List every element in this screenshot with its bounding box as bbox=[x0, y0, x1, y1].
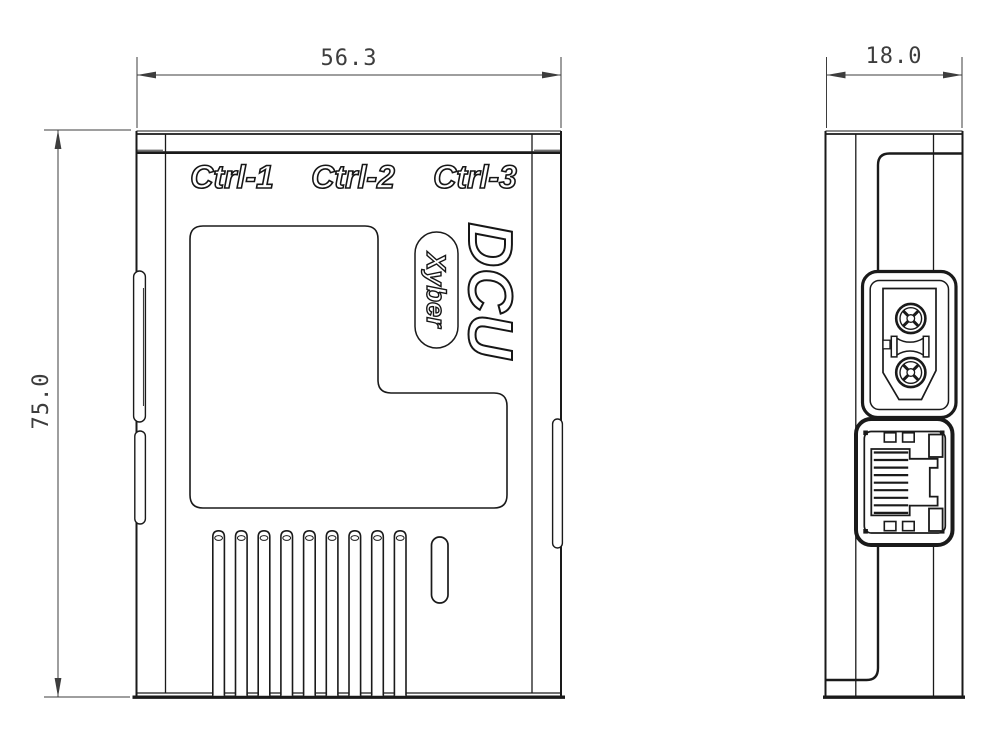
brand-name-label: Xyber bbox=[419, 235, 453, 345]
xt30-power-connector-icon bbox=[863, 272, 957, 418]
depth-dimension-value: 18.0 bbox=[834, 44, 954, 70]
cad-drawing-sheet: 56.3 18.0 75.0 Ctrl-1 Ctrl-2 Ctrl-3 DCU … bbox=[0, 0, 1000, 737]
port-label-ctrl3: Ctrl-3 bbox=[410, 160, 540, 194]
cooling-fins-icon bbox=[213, 531, 406, 696]
height-dimension bbox=[44, 130, 131, 697]
port-label-ctrl1: Ctrl-1 bbox=[167, 160, 297, 194]
status-led-slot bbox=[432, 537, 449, 603]
model-name-label: DCU bbox=[454, 191, 524, 391]
width-dimension-value: 56.3 bbox=[289, 46, 409, 72]
height-dimension-value: 75.0 bbox=[29, 341, 55, 461]
port-label-ctrl2: Ctrl-2 bbox=[288, 160, 418, 194]
side-view bbox=[823, 131, 965, 697]
rj45-ethernet-port-icon bbox=[856, 419, 953, 545]
